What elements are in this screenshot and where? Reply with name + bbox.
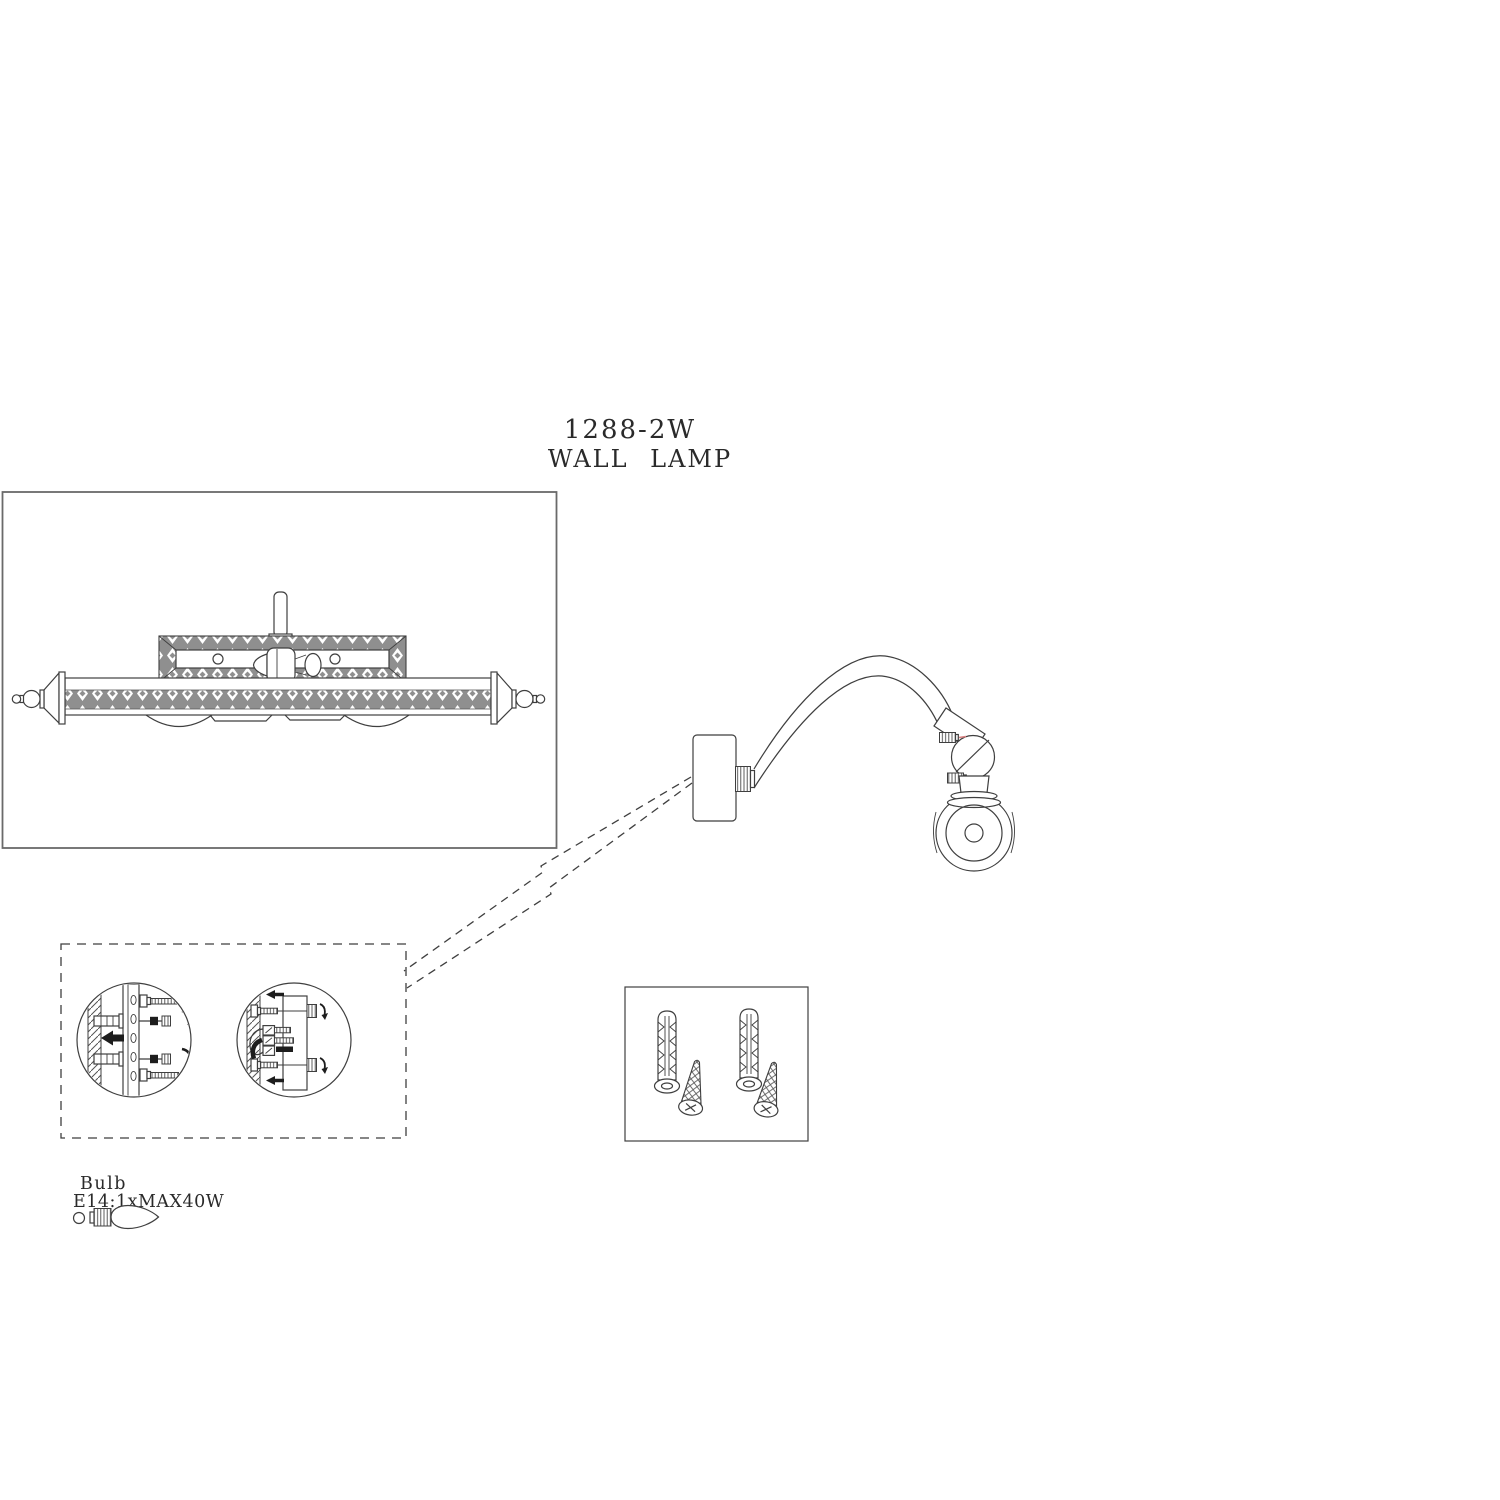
lamp-bar	[65, 678, 491, 715]
instruction-sheet: 1288-2W WALL LAMP	[0, 0, 1500, 1500]
mount-step-2-circle	[237, 983, 351, 1097]
wall-plug-icon	[737, 1009, 762, 1091]
lamp-shade-side	[933, 792, 1014, 872]
wall-plug-inserted	[94, 1014, 123, 1028]
mounting-detail-panel	[61, 944, 406, 1138]
wall-lamp-side-view	[693, 656, 1015, 871]
title-block: 1288-2W WALL LAMP	[548, 415, 732, 473]
wall-plug-inserted	[94, 1052, 123, 1066]
bulb-info: Bulb E14:1xMAX40W	[73, 1174, 224, 1229]
alignment-mark	[959, 737, 966, 738]
coupling-nut	[736, 767, 751, 792]
shade-neck	[959, 776, 989, 793]
front-view-panel	[3, 492, 557, 848]
coupling-collar	[751, 771, 755, 788]
shade-ring	[948, 798, 1001, 808]
model-number: 1288-2W	[564, 415, 696, 445]
screw-hole	[213, 654, 223, 664]
screw-hole	[330, 654, 340, 664]
wire-stub	[276, 1047, 293, 1053]
curved-arm	[754, 656, 953, 788]
bulb-label: Bulb	[80, 1174, 127, 1194]
wall-mount-plate	[693, 735, 736, 821]
wall-plug-icon	[655, 1011, 680, 1093]
pivot-screw-joint	[952, 736, 995, 779]
product-name: WALL LAMP	[548, 445, 732, 473]
bulb-socket-circle-icon	[74, 1213, 85, 1224]
hardware-box	[625, 987, 808, 1141]
mount-step-1-circle	[77, 983, 196, 1098]
hardware-box-border	[625, 987, 808, 1141]
